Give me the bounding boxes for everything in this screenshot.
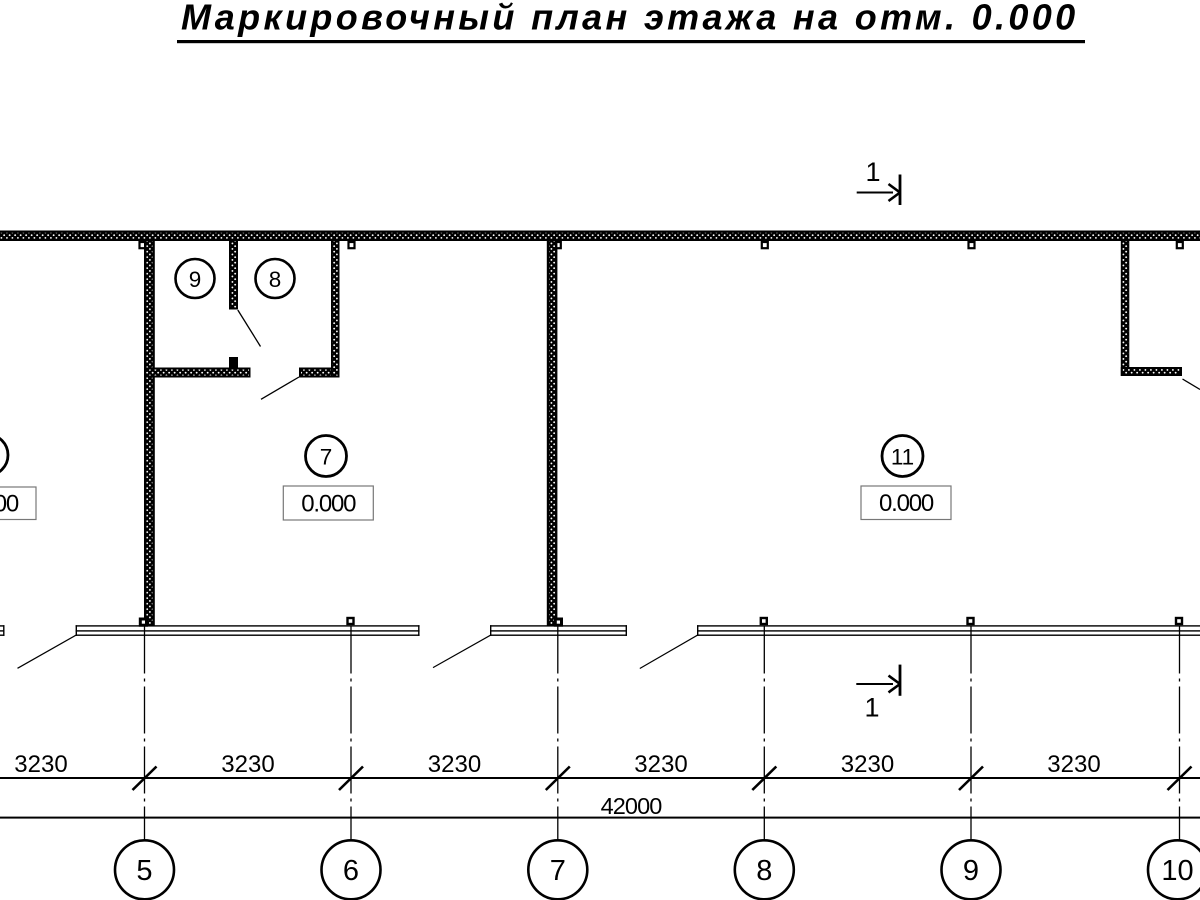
svg-text:7: 7 <box>550 855 566 887</box>
svg-text:10: 10 <box>1161 855 1193 887</box>
svg-text:8: 8 <box>269 267 282 292</box>
svg-text:1: 1 <box>864 693 879 723</box>
svg-text:11: 11 <box>891 444 914 469</box>
svg-text:8: 8 <box>756 855 772 887</box>
svg-text:0.000: 0.000 <box>879 490 934 517</box>
svg-text:7: 7 <box>320 444 333 469</box>
svg-text:3230: 3230 <box>14 751 67 778</box>
svg-text:0.000: 0.000 <box>0 491 19 518</box>
svg-text:1: 1 <box>865 157 880 187</box>
svg-text:3230: 3230 <box>634 751 687 778</box>
svg-text:9: 9 <box>189 267 202 292</box>
svg-text:42000: 42000 <box>601 793 663 819</box>
svg-text:9: 9 <box>963 855 979 887</box>
svg-text:5: 5 <box>136 855 152 887</box>
svg-text:6: 6 <box>343 855 359 887</box>
svg-text:Маркировочный план этажа на от: Маркировочный план этажа на отм. 0.000 <box>181 0 1079 38</box>
svg-text:3230: 3230 <box>221 751 274 778</box>
svg-text:3230: 3230 <box>1047 751 1100 778</box>
svg-text:3230: 3230 <box>841 751 894 778</box>
svg-text:3230: 3230 <box>428 751 481 778</box>
svg-text:0.000: 0.000 <box>301 491 356 518</box>
